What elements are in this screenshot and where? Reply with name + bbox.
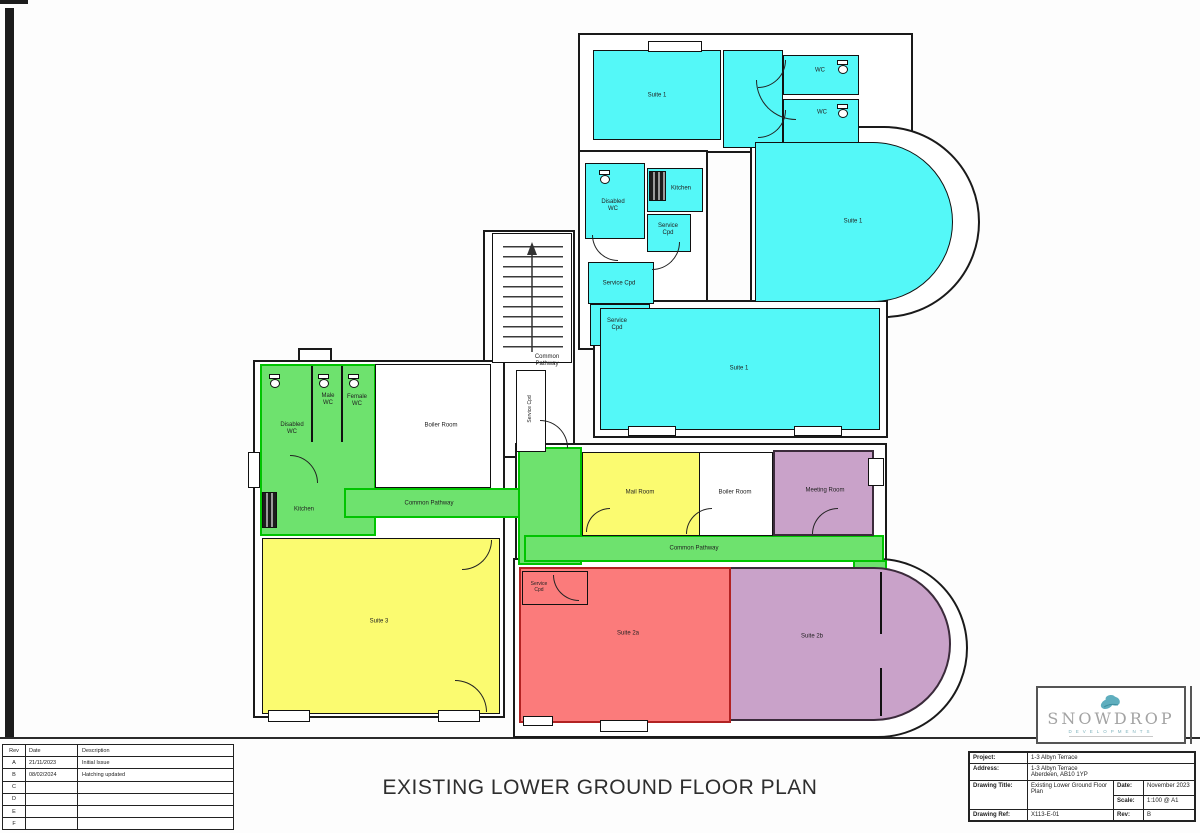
title-block: Project: 1-3 Albyn Terrace Address: 1-3 … <box>968 751 1196 822</box>
revision-row: D <box>3 793 233 805</box>
address-label: Address: <box>970 764 1028 780</box>
revision-table: Rev Date Description A 21/11/2023 Initia… <box>2 744 234 830</box>
kitchen-unit-icon <box>262 492 277 528</box>
revision-row: F <box>3 817 233 829</box>
room-label-suite1-topleft: Suite 1 <box>648 92 667 99</box>
wall-suite2b-a <box>880 572 882 634</box>
room-label-wc-bottom: WC <box>817 109 827 116</box>
logo-subtitle: DEVELOPMENTS <box>1068 729 1153 734</box>
room-label-suite3: Suite 3 <box>370 618 389 625</box>
date-label: Date: <box>1114 781 1144 795</box>
room-label-service-cpd-vert: Service Cpd <box>527 395 533 422</box>
drawing-title-text: EXISTING LOWER GROUND FLOOR PLAN <box>250 776 950 800</box>
project-value: 1-3 Albyn Terrace <box>1028 753 1194 763</box>
room-label-kitchen-cyan: Kitchen <box>671 185 691 192</box>
room-label-service-cpd-a: Service Cpd <box>658 223 678 237</box>
window <box>268 710 310 722</box>
room-label-boiler-left: Boiler Room <box>424 422 457 429</box>
project-label: Project: <box>970 753 1028 763</box>
revision-cell: F <box>3 818 26 829</box>
window <box>648 41 702 52</box>
revision-cell <box>26 818 78 829</box>
drawing-title-label: Drawing Title: <box>970 781 1028 809</box>
date-scale-subtable: Date: November 2023 Scale: 1:100 @ A1 <box>1114 781 1194 809</box>
revision-cell: Initial Issue <box>78 760 233 766</box>
revision-header-row: Rev Date Description <box>3 745 233 756</box>
wall-suite2b-b <box>880 668 882 716</box>
revision-cell: B <box>3 769 26 780</box>
window <box>523 716 553 726</box>
toilet-icon <box>268 374 281 390</box>
wall-wc-stall-2 <box>341 366 343 442</box>
room-suite2b <box>729 567 951 721</box>
title-block-row-date: Date: November 2023 <box>1114 781 1194 795</box>
address-value: 1-3 Albyn Terrace Aberdeen, AB10 1YP <box>1028 764 1194 780</box>
revision-cell <box>26 782 78 793</box>
room-label-disabled-wc-green: Disabled WC <box>280 422 303 436</box>
rev-label: Rev: <box>1114 810 1144 820</box>
scale-value: 1:100 @ A1 <box>1144 796 1194 810</box>
toilet-icon <box>836 60 849 76</box>
revision-cell: 08/02/2024 <box>26 769 78 780</box>
room-label-disabled-wc-cyan: Disabled WC <box>601 199 624 213</box>
room-label-suite2b: Suite 2b <box>801 633 823 640</box>
revision-cell <box>26 794 78 805</box>
room-label-suite1-mid: Suite 1 <box>730 365 749 372</box>
room-label-meeting: Meeting Room <box>805 487 844 494</box>
logo-tagline-rule <box>1069 736 1153 737</box>
revision-cell: 21/11/2023 <box>26 757 78 768</box>
room-label-common-pathway-long: Common Pathway <box>669 545 718 552</box>
revision-row: A 21/11/2023 Initial Issue <box>3 756 233 768</box>
wall-wc-stall-1 <box>311 366 313 442</box>
room-label-common-pathway-left: Common Pathway <box>404 500 453 507</box>
scale-label: Scale: <box>1114 796 1144 810</box>
revision-row: B 08/02/2024 Hatching updated <box>3 768 233 780</box>
revision-cell <box>26 806 78 817</box>
room-label-service-cpd-b: Service Cpd <box>603 280 636 287</box>
window <box>600 720 648 732</box>
room-label-wc-top: WC <box>815 67 825 74</box>
room-label-female-wc: Female WC <box>347 394 367 408</box>
toilet-icon <box>347 374 360 390</box>
logo-name: SNOWDROP <box>1047 711 1174 727</box>
drawing-title-value: Existing Lower Ground Floor Plan <box>1028 781 1114 809</box>
title-block-row-project: Project: 1-3 Albyn Terrace <box>970 753 1194 763</box>
window <box>794 426 842 436</box>
room-label-suite1-main: Suite 1 <box>844 218 863 225</box>
window <box>628 426 676 436</box>
title-block-row-scale: Scale: 1:100 @ A1 <box>1114 795 1194 810</box>
date-value: November 2023 <box>1144 781 1194 795</box>
revision-cell: C <box>3 782 26 793</box>
toilet-icon <box>598 170 611 186</box>
room-label-kitchen-green: Kitchen <box>294 506 314 513</box>
revision-header-rev: Rev <box>3 745 26 756</box>
title-block-row-address: Address: 1-3 Albyn Terrace Aberdeen, AB1… <box>970 763 1194 780</box>
revision-row: C <box>3 781 233 793</box>
company-logo: SNOWDROP DEVELOPMENTS <box>1036 686 1186 744</box>
room-label-suite2a: Suite 2a <box>617 630 639 637</box>
stair-direction-arrow <box>524 242 540 354</box>
room-label-mail: Mail Room <box>626 489 655 496</box>
revision-row: E <box>3 805 233 817</box>
drawing-ref-value: X113-E-01 <box>1028 810 1114 820</box>
revision-cell: E <box>3 806 26 817</box>
title-block-row-drawing-title: Drawing Title: Existing Lower Ground Flo… <box>970 780 1194 809</box>
toilet-icon <box>836 104 849 120</box>
window <box>868 458 884 486</box>
revision-cell: D <box>3 794 26 805</box>
revision-cell: Hatching updated <box>78 772 233 778</box>
room-label-service-cpd-c: Service Cpd <box>607 318 627 332</box>
sheet-left-border <box>5 8 14 738</box>
sheet-right-border <box>1190 686 1192 744</box>
window <box>248 452 260 488</box>
sheet-top-border <box>0 0 28 4</box>
room-label-common-pathway-stairs: Common Pathway <box>535 354 559 368</box>
drawing-ref-label: Drawing Ref: <box>970 810 1028 820</box>
toilet-icon <box>317 374 330 390</box>
rev-value: B <box>1144 810 1194 820</box>
revision-header-description: Description <box>78 748 233 754</box>
title-block-row-ref: Drawing Ref: X113-E-01 Rev: B <box>970 809 1194 820</box>
revision-header-date: Date <box>26 745 78 756</box>
drawing-sheet: Suite 1 WC WC Suite 1 Suite 1 Disabled W… <box>0 0 1200 833</box>
room-label-boiler-mid: Boiler Room <box>718 489 751 496</box>
room-label-male-wc: Male WC <box>321 393 334 407</box>
kitchen-unit-icon <box>649 171 666 201</box>
room-label-service-cpd-red: Service Cpd <box>531 581 548 593</box>
revision-cell: A <box>3 757 26 768</box>
